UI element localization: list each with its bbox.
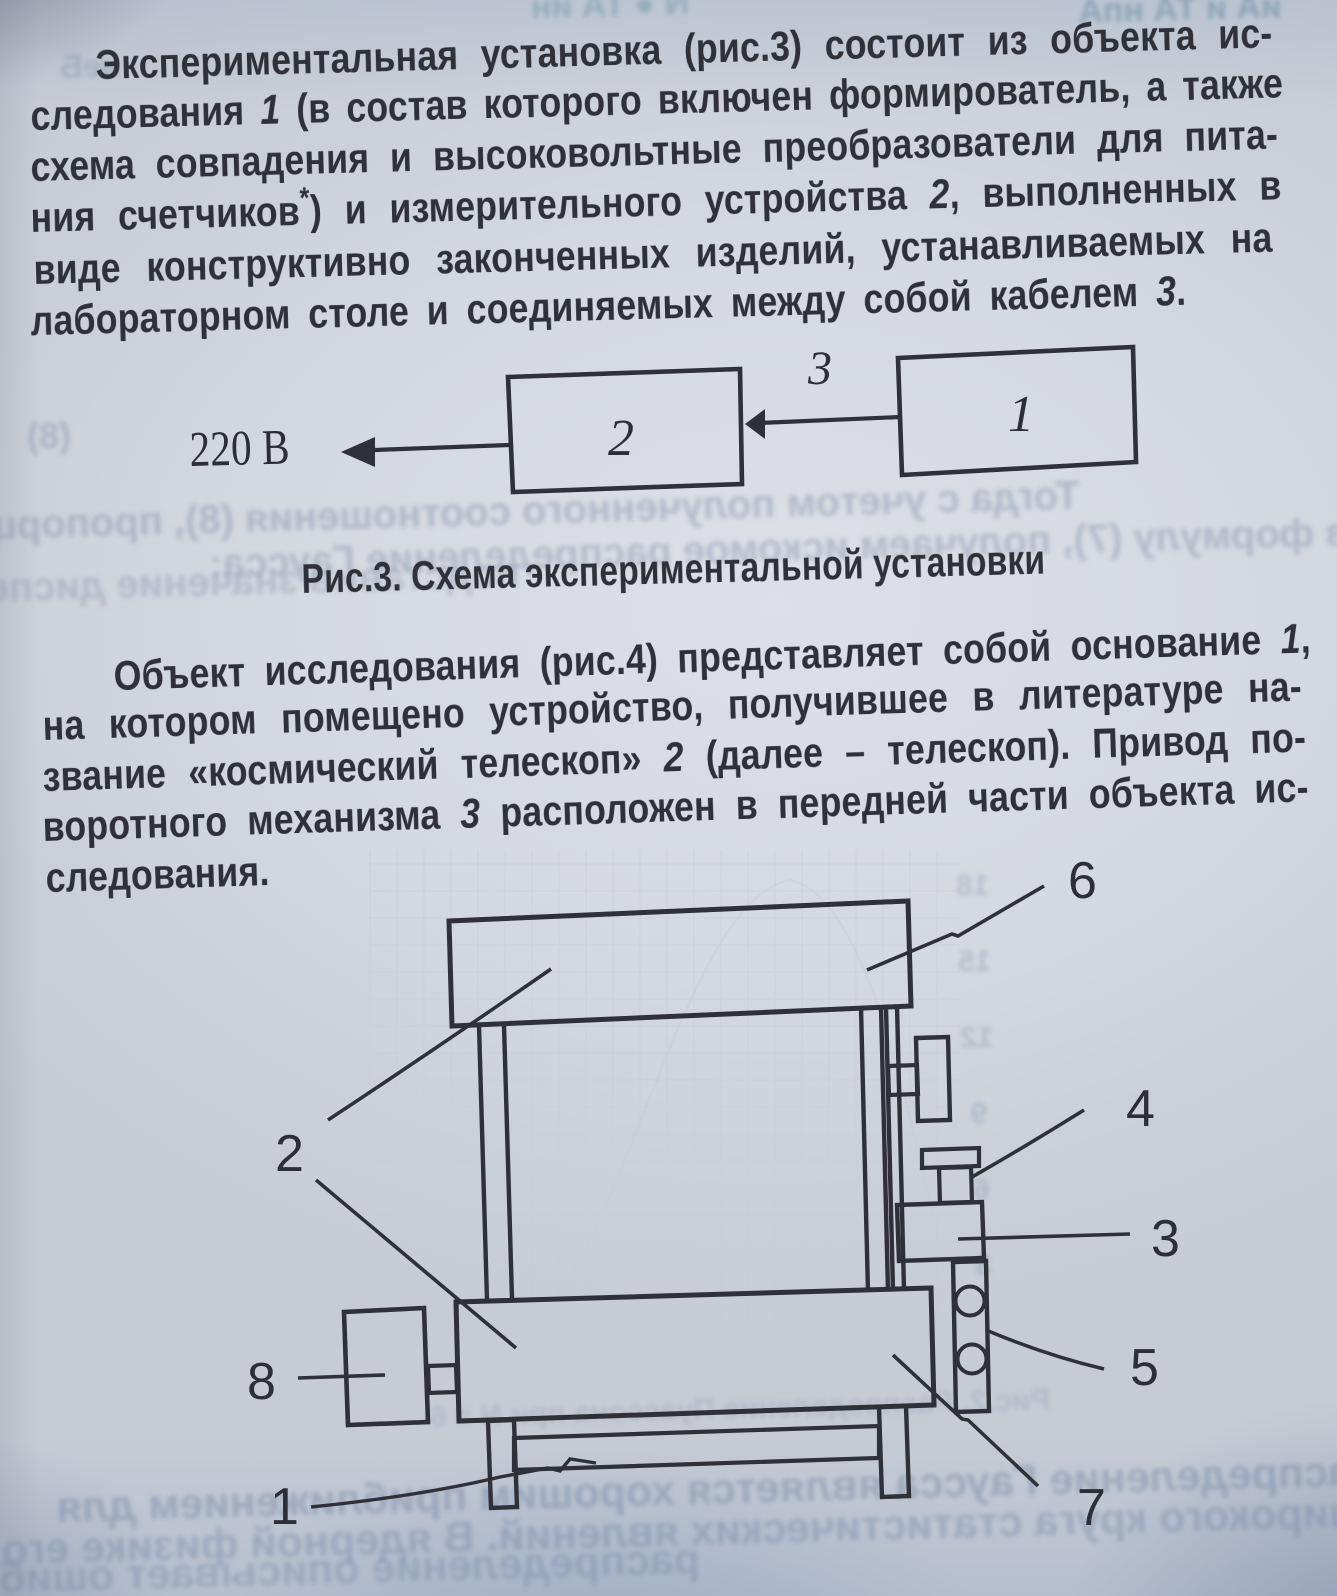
svg-text:220 В: 220 В (189, 418, 290, 477)
svg-text:4: 4 (1126, 1080, 1155, 1138)
svg-text:2: 2 (275, 1125, 304, 1183)
svg-text:1: 1 (1008, 386, 1034, 443)
svg-text:1: 1 (270, 1478, 299, 1536)
svg-text:7: 7 (1077, 1479, 1106, 1537)
svg-text:6: 6 (1068, 852, 1097, 910)
svg-text:5: 5 (1130, 1339, 1159, 1397)
svg-text:2: 2 (608, 410, 634, 467)
svg-text:3: 3 (1151, 1210, 1180, 1268)
svg-text:8: 8 (247, 1353, 276, 1411)
svg-text:3: 3 (807, 342, 832, 395)
